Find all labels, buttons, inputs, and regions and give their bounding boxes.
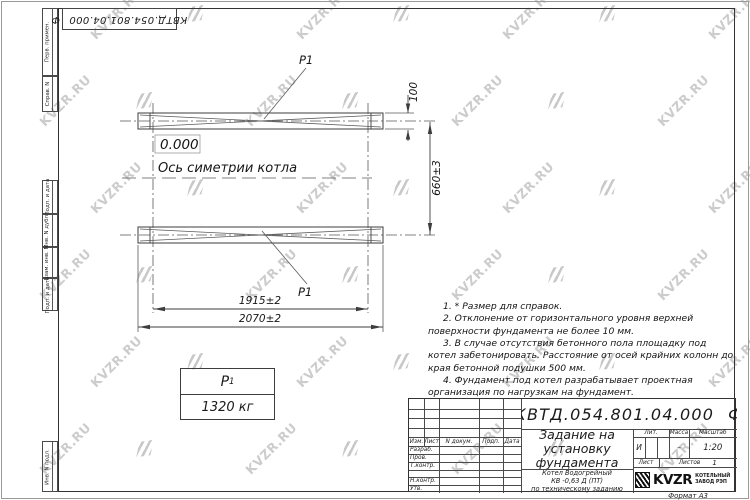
drawing-sheet: KVZR.RUKVZR.RUKVZR.RUKVZR.RUKVZR.RUKVZR.… [0, 0, 750, 500]
tb-product-name: Котел Водогрейный КВ -0,63 Д (ПТ) по тех… [521, 469, 633, 493]
tb-line [657, 437, 658, 458]
tb-sheets-cell: Листов 1 [659, 458, 737, 467]
tb-mass-label: Масса [669, 429, 689, 437]
format-label: Формат А3 [638, 492, 738, 500]
note-2: 2. Отклонение от горизонтального уровня … [428, 313, 736, 338]
tb-sheets-value: 1 [712, 459, 716, 467]
tb-scale-value: 1:20 [689, 437, 737, 458]
load-symbol-letter: P [221, 374, 229, 390]
tb-sheets-label: Листов [679, 460, 701, 466]
company-logo-row: KVZR КОТЕЛЬНЫЙ ЗАВОД РЭП [633, 467, 737, 493]
tb-row-utv: Утв. [410, 485, 439, 493]
tb-doc-number: КВТД.054.801.04.000 Ф [521, 399, 737, 429]
notes: 1. * Размер для справок. 2. Отклонение о… [428, 301, 736, 400]
elevation-mark: 0.000 [155, 135, 200, 153]
load-point-label-bottom: P1 [298, 285, 312, 299]
load-value: 1320 кг [181, 395, 274, 419]
dim-2070-label: 2070±2 [239, 313, 282, 325]
company-name-line: ЗАВОД РЭП [695, 480, 730, 486]
title-line: установку [543, 442, 610, 456]
load-symbol-subscript: 1 [229, 377, 234, 387]
tb-col-list: Лист [424, 437, 439, 446]
bottom-foundation-plate [138, 227, 383, 243]
load-table: P1 1320 кг [180, 368, 275, 420]
company-name: КОТЕЛЬНЫЙ ЗАВОД РЭП [695, 474, 730, 486]
dimension-1915: 1915±2 [153, 295, 368, 311]
elevation-value: 0.000 [160, 137, 199, 153]
symmetry-axis-label: Ось симетрии котла [158, 161, 297, 176]
tb-document-title: Задание на установку фундамента [521, 429, 633, 469]
tb-line [409, 428, 521, 429]
title-block: Изм. Лист N докум. Подп. Дата Разраб. Пр… [408, 398, 736, 492]
note-3: 3. В случае отсутствия бетонного пола пл… [428, 338, 736, 375]
leader-lines [262, 68, 307, 284]
load-symbol: P1 [181, 369, 274, 395]
kvzr-logo-icon [635, 472, 650, 488]
dim-1915-label: 1915±2 [239, 295, 282, 307]
dim-100-label: 100 [408, 82, 420, 102]
tb-row-tkontr: Т.контр. [410, 462, 439, 470]
title-line: фундамента [536, 456, 619, 469]
tb-col-data: Дата [503, 437, 521, 446]
tb-line [645, 437, 646, 458]
tb-mass-value: – [669, 437, 689, 458]
top-foundation-plate [138, 113, 383, 129]
tb-lit-label: Лит. [633, 429, 669, 437]
note-1: 1. * Размер для справок. [428, 301, 736, 313]
dimension-100: 100 [406, 82, 420, 141]
note-4: 4. Фундамент под котел разрабатывает про… [428, 375, 736, 400]
tb-scale-label: Масштаб [689, 429, 737, 437]
tb-row-razrab: Разраб. [410, 446, 439, 454]
dimension-2070: 2070±2 [138, 313, 383, 329]
tb-sheet-label: Лист [633, 458, 659, 467]
doc-number: КВТД.054.801.04.000 [521, 405, 714, 424]
doc-suffix: Ф [728, 405, 736, 424]
kvzr-logo-text: KVZR [653, 472, 692, 488]
tb-lit-value: И [633, 437, 645, 458]
product-line: по техническому заданию [531, 485, 623, 493]
tb-row-empty [410, 470, 439, 478]
load-point-label-top: P1 [299, 53, 313, 67]
tb-col-podp: Подп. [479, 437, 503, 446]
tb-line [409, 409, 521, 410]
product-line: Котел Водогрейный [542, 469, 612, 477]
dimension-660: 660±3 [428, 122, 443, 235]
tb-row-prov: Пров. [410, 454, 439, 462]
tb-col-izm: Изм. [409, 437, 424, 446]
sheet-content: Перв. примен. Справ. N Подп. и дата Инв.… [0, 0, 750, 500]
tb-line [409, 418, 521, 419]
dim-660-label: 660±3 [431, 160, 443, 196]
tb-row-nkontr: Н.контр. [410, 477, 439, 485]
product-line: КВ -0,63 Д (ПТ) [551, 477, 603, 485]
tb-col-ndocum: N докум. [439, 437, 479, 446]
axis-lines [120, 103, 438, 313]
